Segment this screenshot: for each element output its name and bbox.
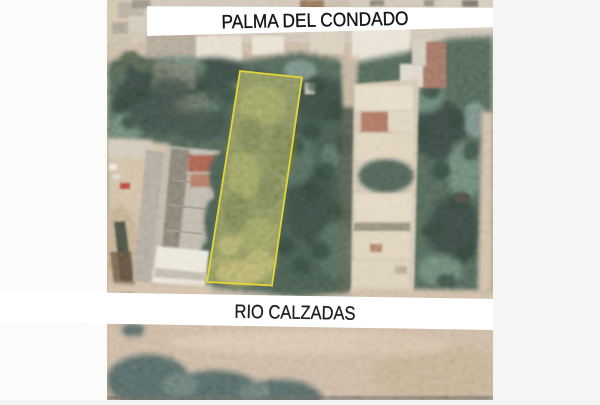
svg-text:RIO CALZADAS: RIO CALZADAS xyxy=(234,302,355,325)
svg-text:PALMA DEL CONDADO: PALMA DEL CONDADO xyxy=(221,9,408,34)
